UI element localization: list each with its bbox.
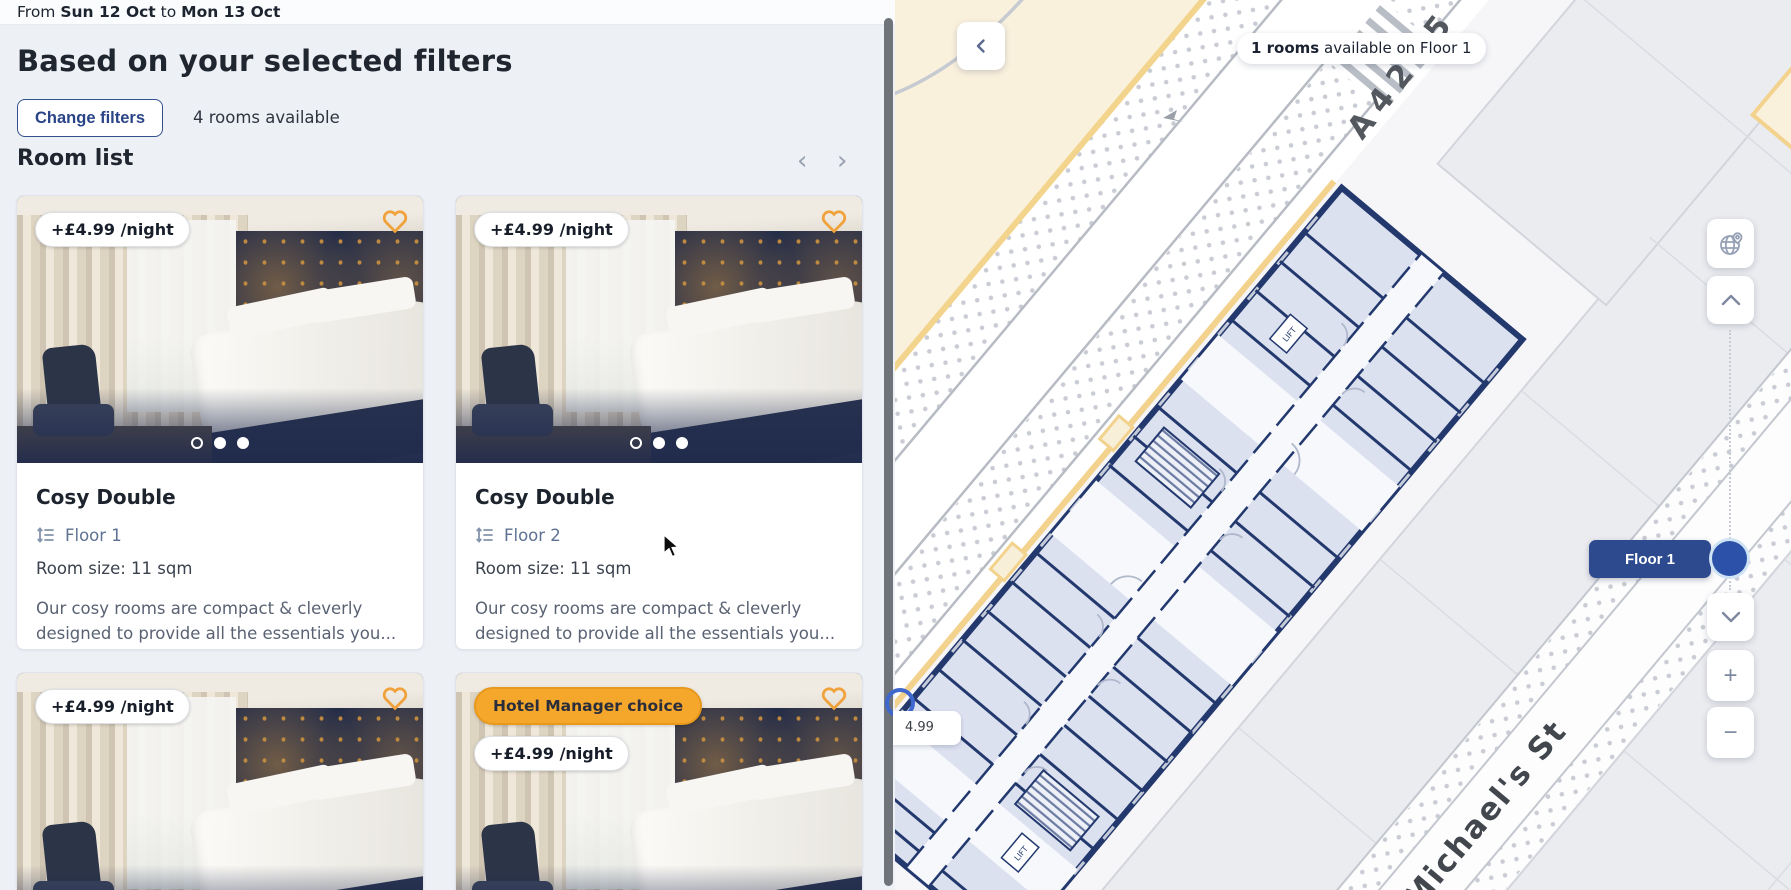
change-filters-button[interactable]: Change filters bbox=[17, 99, 163, 137]
tooltip-text: available on Floor 1 bbox=[1319, 39, 1471, 57]
floor-selector-button[interactable]: Floor 1 bbox=[1589, 540, 1711, 578]
room-description: Our cosy rooms are compact & cleverly de… bbox=[475, 596, 843, 646]
map-back-button[interactable] bbox=[957, 22, 1005, 70]
room-photo: +£4.99 /night bbox=[456, 196, 862, 463]
floor-level-icon bbox=[36, 525, 56, 545]
carousel-dot[interactable] bbox=[676, 437, 688, 449]
price-badge: +£4.99 /night bbox=[474, 736, 629, 771]
rooms-available-count: 4 rooms available bbox=[193, 108, 340, 127]
date-to-label: to bbox=[161, 3, 177, 21]
date-from-label: From bbox=[17, 3, 55, 21]
start-date: Sun 12 Oct bbox=[60, 3, 155, 21]
room-description: Our cosy rooms are compact & cleverly de… bbox=[36, 596, 404, 646]
page-title: Based on your selected filters bbox=[17, 44, 513, 78]
room-size: Room size: 11 sqm bbox=[475, 559, 843, 578]
favorite-heart-icon[interactable] bbox=[818, 683, 850, 715]
carousel-next-icon[interactable]: › bbox=[837, 148, 847, 174]
end-date: Mon 13 Oct bbox=[181, 3, 280, 21]
price-badge: +£4.99 /night bbox=[35, 212, 190, 247]
carousel-dot[interactable] bbox=[630, 437, 642, 449]
carousel-dot[interactable] bbox=[237, 437, 249, 449]
carousel-prev-icon[interactable]: ‹ bbox=[797, 148, 807, 174]
room-floor: Floor 2 bbox=[504, 526, 561, 545]
room-price-marker[interactable]: 4.99 bbox=[893, 711, 961, 745]
zoom-out-button[interactable]: − bbox=[1707, 707, 1754, 758]
carousel-dot[interactable] bbox=[214, 437, 226, 449]
globe-pin-icon bbox=[1716, 229, 1746, 259]
favorite-heart-icon[interactable] bbox=[379, 683, 411, 715]
chevron-left-icon bbox=[972, 37, 990, 55]
map-graphics: LIFT LIFT Michael's St A4205 bbox=[895, 0, 1791, 890]
room-name: Cosy Double bbox=[475, 485, 843, 509]
room-list-panel: From Sun 12 Oct to Mon 13 Oct Based on y… bbox=[0, 0, 895, 890]
carousel-dots bbox=[17, 437, 423, 449]
room-floor: Floor 1 bbox=[65, 526, 122, 545]
room-photo: +£4.99 /night bbox=[17, 196, 423, 463]
carousel-dot[interactable] bbox=[191, 437, 203, 449]
carousel-dots bbox=[456, 437, 862, 449]
room-card-3[interactable]: +£4.99 /night bbox=[16, 672, 424, 890]
panel-scrollbar[interactable] bbox=[884, 18, 893, 886]
price-badge: +£4.99 /night bbox=[474, 212, 629, 247]
booking-app: From Sun 12 Oct to Mon 13 Oct Based on y… bbox=[0, 0, 1791, 890]
room-photo: Hotel Manager choice +£4.99 /night bbox=[456, 673, 862, 890]
floor-down-button[interactable] bbox=[1707, 593, 1754, 641]
rooms-available-tooltip: 1 rooms available on Floor 1 bbox=[1237, 33, 1486, 64]
tooltip-count: 1 rooms bbox=[1251, 39, 1319, 57]
favorite-heart-icon[interactable] bbox=[818, 206, 850, 238]
hotel-manager-choice-badge: Hotel Manager choice bbox=[474, 687, 702, 725]
carousel-dot[interactable] bbox=[653, 437, 665, 449]
room-card-cosy-double-floor2[interactable]: +£4.99 /night Cosy Double Floor 2 bbox=[455, 195, 863, 650]
price-badge: +£4.99 /night bbox=[35, 689, 190, 724]
room-card-cosy-double-floor1[interactable]: +£4.99 /night Cosy Double Floor 1 bbox=[16, 195, 424, 650]
favorite-heart-icon[interactable] bbox=[379, 206, 411, 238]
room-name: Cosy Double bbox=[36, 485, 404, 509]
globe-location-button[interactable] bbox=[1707, 219, 1754, 268]
room-size: Room size: 11 sqm bbox=[36, 559, 404, 578]
room-card-4-manager-choice[interactable]: Hotel Manager choice +£4.99 /night bbox=[455, 672, 863, 890]
floor-up-button[interactable] bbox=[1707, 276, 1754, 324]
zoom-in-button[interactable]: + bbox=[1707, 650, 1754, 701]
chevron-down-icon bbox=[1721, 611, 1741, 623]
room-card-body: Cosy Double Floor 1 Room size: 11 sqm Ou… bbox=[17, 463, 423, 646]
room-photo: +£4.99 /night bbox=[17, 673, 423, 890]
room-card-body: Cosy Double Floor 2 Room size: 11 sqm Ou… bbox=[456, 463, 862, 646]
room-list-heading: Room list bbox=[17, 146, 133, 171]
date-range-bar: From Sun 12 Oct to Mon 13 Oct bbox=[0, 0, 895, 25]
map-canvas[interactable]: LIFT LIFT Michael's St A4205 1 rooms ava… bbox=[895, 0, 1791, 890]
floor-level-icon bbox=[475, 525, 495, 545]
floor-selector-knob[interactable] bbox=[1712, 541, 1747, 576]
chevron-up-icon bbox=[1721, 294, 1741, 306]
